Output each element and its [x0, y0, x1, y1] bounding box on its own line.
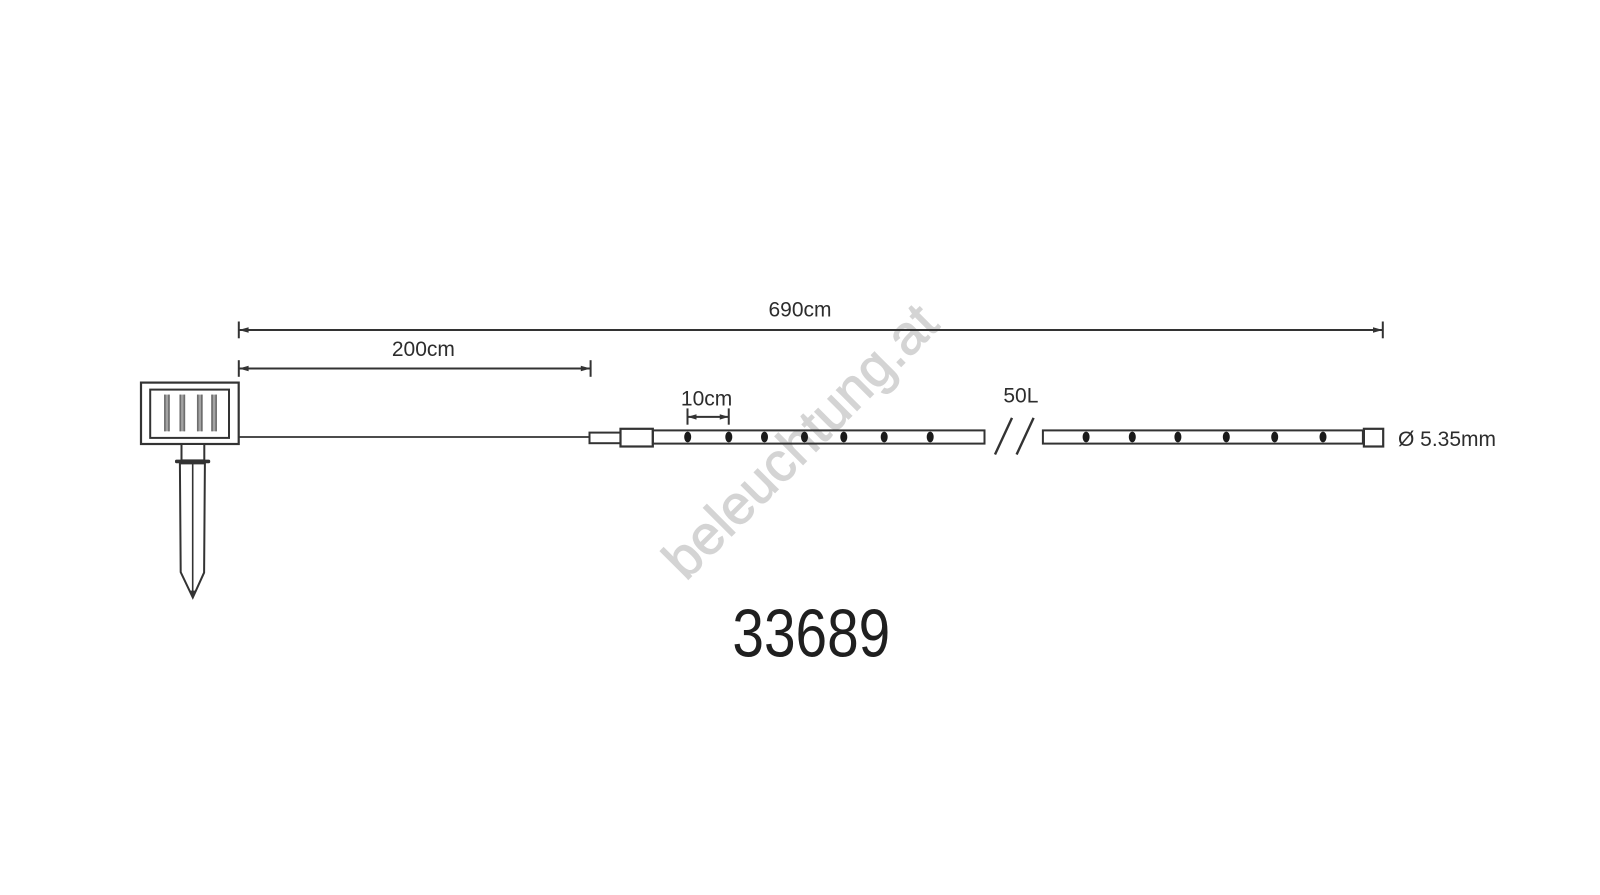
svg-text:Ø 5.35mm: Ø 5.35mm	[1398, 428, 1496, 451]
svg-text:10cm: 10cm	[681, 388, 732, 411]
svg-text:50L: 50L	[1003, 385, 1038, 408]
svg-text:beleuchtung.at: beleuchtung.at	[650, 291, 949, 590]
svg-text:33689: 33689	[732, 596, 890, 672]
svg-text:200cm: 200cm	[392, 338, 455, 361]
svg-text:690cm: 690cm	[768, 299, 831, 322]
